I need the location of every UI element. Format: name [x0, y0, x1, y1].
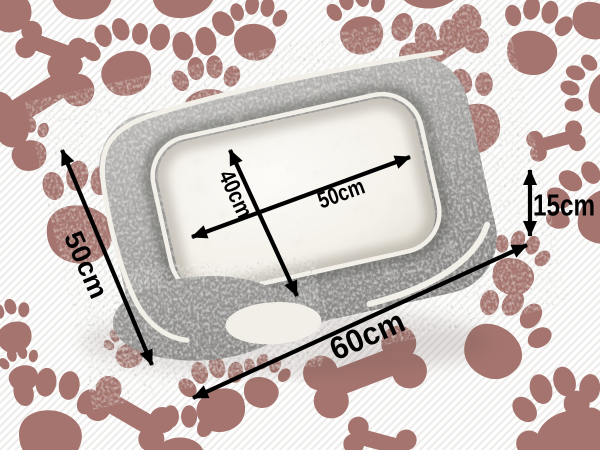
dimension-label-wall-height: 15cm	[533, 188, 595, 223]
pet-bed-product-image: 50cm 40cm 50cm 15cm 60cm	[0, 0, 600, 450]
product-photo: 50cm 40cm 50cm 15cm 60cm	[0, 0, 600, 450]
